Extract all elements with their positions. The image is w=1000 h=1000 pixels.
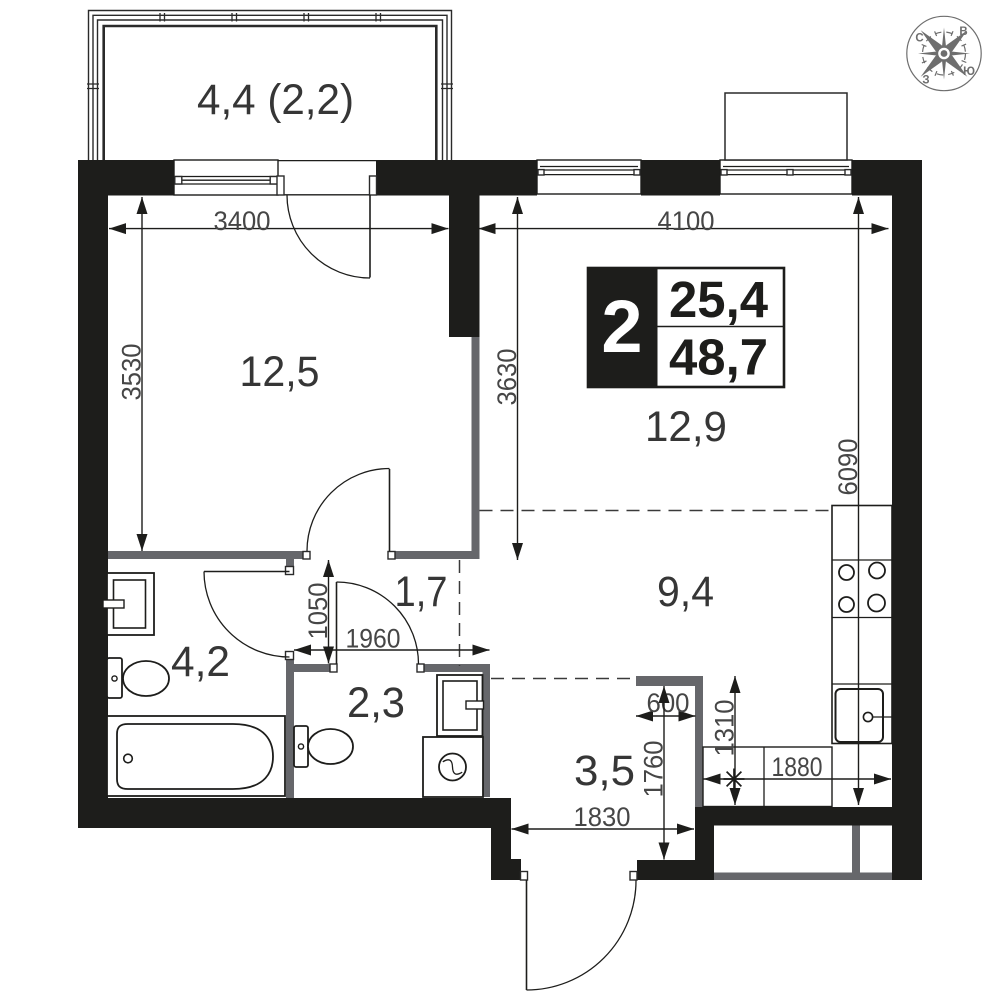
svg-text:1,7: 1,7 [395, 568, 448, 616]
svg-text:З: З [922, 75, 929, 87]
svg-text:2,3: 2,3 [347, 679, 405, 727]
svg-text:1760: 1760 [639, 741, 669, 798]
svg-text:9,4: 9,4 [657, 568, 714, 616]
svg-text:3630: 3630 [492, 349, 522, 406]
svg-text:3400: 3400 [214, 206, 271, 236]
svg-text:4100: 4100 [658, 206, 715, 236]
svg-text:12,9: 12,9 [645, 403, 727, 451]
svg-text:1310: 1310 [710, 700, 740, 757]
svg-text:В: В [959, 26, 967, 38]
svg-text:1830: 1830 [574, 802, 631, 832]
svg-text:4,2: 4,2 [171, 638, 230, 686]
svg-text:1880: 1880 [772, 752, 823, 782]
svg-text:Ю: Ю [963, 66, 975, 78]
svg-text:2: 2 [601, 285, 642, 368]
svg-text:6090: 6090 [833, 439, 863, 496]
svg-text:4,4 (2,2): 4,4 (2,2) [197, 76, 354, 124]
svg-text:3,5: 3,5 [574, 747, 635, 795]
svg-text:3530: 3530 [117, 344, 147, 401]
svg-text:С: С [915, 33, 923, 45]
svg-text:1960: 1960 [346, 624, 401, 654]
svg-text:1050: 1050 [303, 583, 333, 640]
svg-text:48,7: 48,7 [669, 329, 768, 386]
svg-text:12,5: 12,5 [240, 348, 320, 396]
svg-text:25,4: 25,4 [669, 271, 769, 328]
